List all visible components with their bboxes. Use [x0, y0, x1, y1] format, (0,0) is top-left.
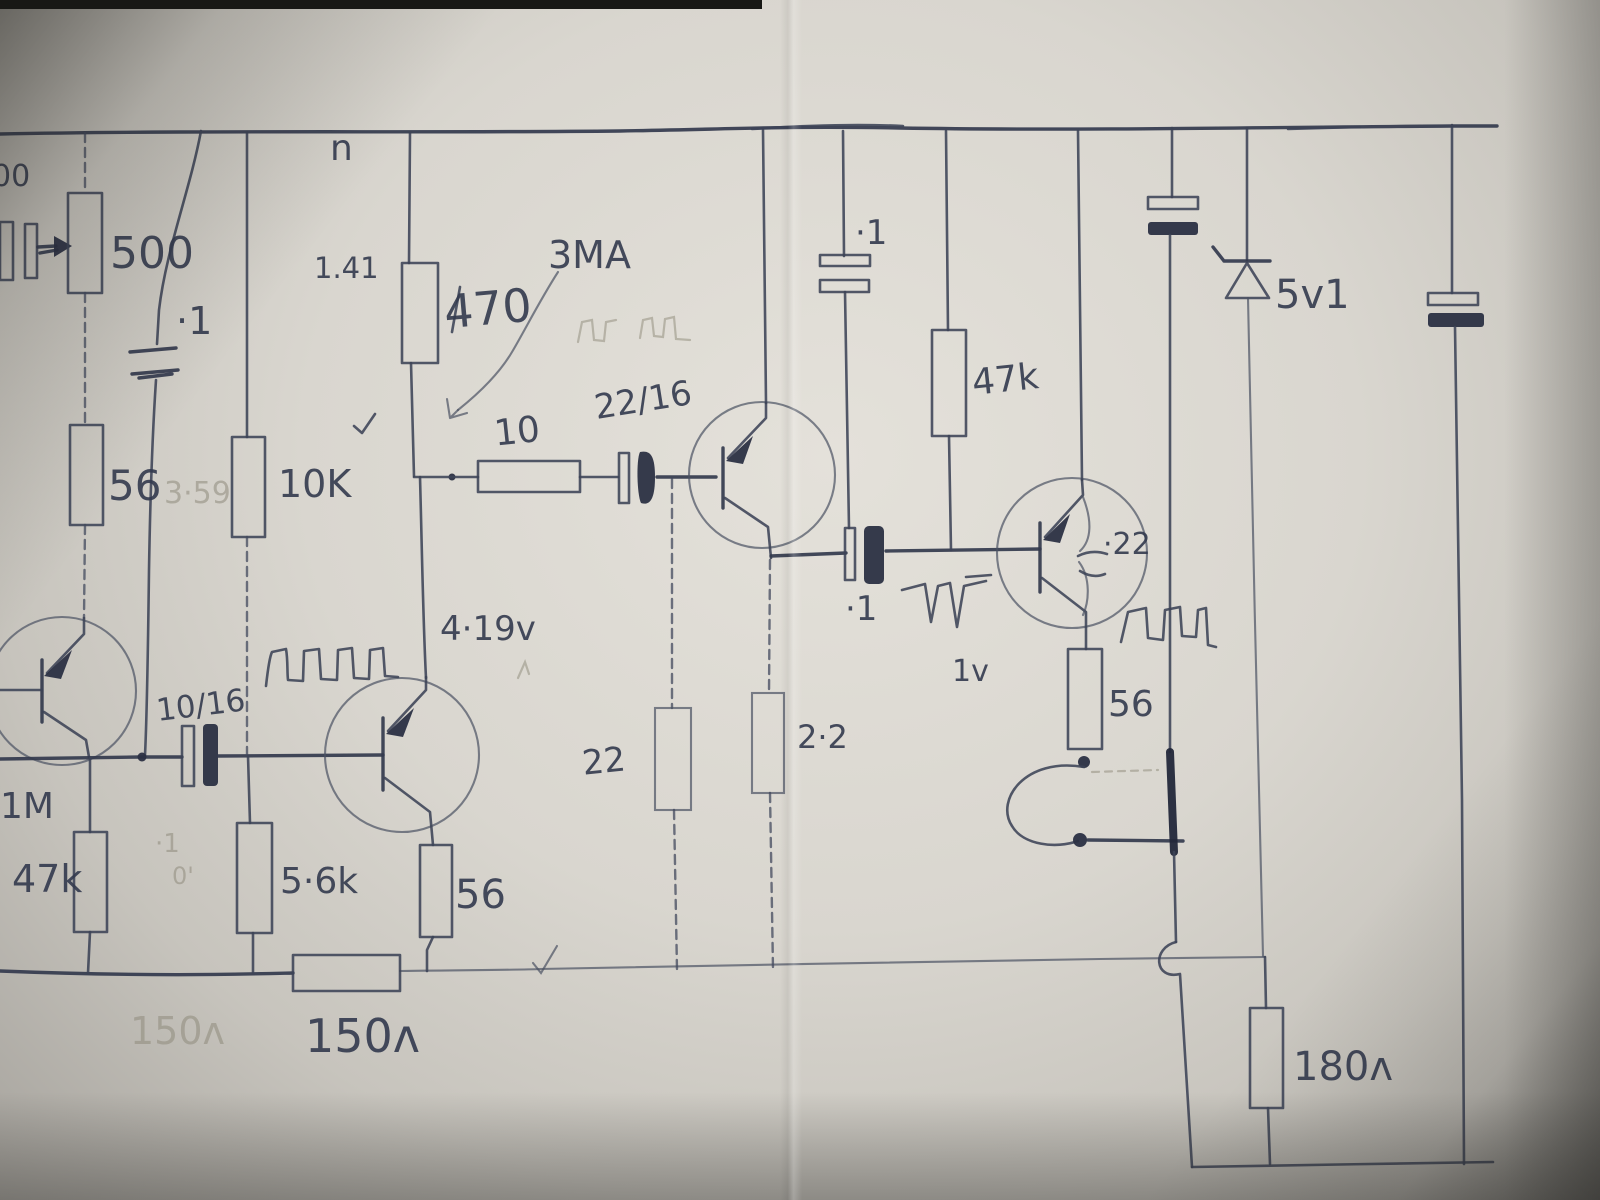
label-cap-01-couple: ·1 [845, 589, 877, 629]
label-pencil-01: ·1 [155, 829, 180, 859]
resistor-56-left [70, 425, 103, 618]
label-r56-right: 56 [1108, 684, 1154, 725]
label-r180: 180ʌ [1293, 1044, 1393, 1090]
label-00-edge: 00 [0, 159, 30, 194]
resistor-5k6 [237, 756, 272, 972]
label-zener-5v1: 5v1 [1275, 272, 1350, 318]
label-n-mark: n [330, 128, 353, 169]
capacitor-01-near-pot [130, 131, 201, 755]
label-r10: 10 [492, 409, 542, 455]
resistor-10 [414, 461, 618, 492]
label-cap-1016: 10/16 [154, 682, 247, 729]
resistor-180 [1250, 957, 1283, 1164]
photo-edge-strip [0, 0, 762, 9]
label-1v: 1v [952, 654, 989, 689]
electrolytic-cap-far-right [1428, 125, 1484, 1164]
squarewave-sketch-right [1121, 607, 1216, 647]
transistor-q1 [0, 617, 136, 765]
label-4-19v: 4·19v [440, 609, 536, 649]
zener-diode-5v1 [1213, 128, 1270, 956]
label-r47k-right: 47k [970, 356, 1041, 404]
label-pencil-0q: 0' [172, 862, 194, 890]
electrolytic-cap-top-right [1148, 128, 1198, 942]
label-r47k-left: 47k [12, 857, 82, 901]
label-r10k: 10K [278, 462, 352, 506]
label-cap-022: ·22 [1103, 527, 1151, 562]
paper-fold-crease [780, 0, 802, 1200]
transistor-q3 [689, 130, 835, 558]
label-1-41v: 1.41 [314, 251, 379, 285]
capacitor-2216 [619, 452, 716, 504]
label-r5k6: 5·6k [280, 861, 358, 902]
label-cap-01-top: ·1 [855, 213, 887, 253]
top-supply-rail [0, 125, 1497, 134]
resistor-10k [232, 133, 265, 755]
label-pencil-359: 3·59 [164, 476, 231, 511]
potentiometer-500 [68, 133, 102, 425]
capacitor-01-top [820, 131, 870, 528]
label-pot-500: 500 [110, 228, 194, 279]
handwritten-labels: n 00 500 ·1 1.41 470 3MA 22/16 10 56 3·5… [0, 128, 1393, 1090]
resistor-56-right [1068, 649, 1102, 749]
label-r1m: 1M [0, 786, 54, 827]
pencil-tick-mid [518, 662, 529, 678]
spike-waveform-sketch [902, 575, 991, 627]
squarewave-sketch-left [266, 648, 398, 686]
resistor-56-q2 [420, 845, 452, 971]
loop-link [1007, 756, 1183, 847]
label-r2-2: 2·2 [797, 718, 848, 756]
label-r150: 150ʌ [305, 1009, 420, 1063]
label-r56-q2: 56 [455, 872, 506, 918]
resistor-47k-right [932, 131, 966, 550]
wire-hop-over-ground [1159, 942, 1192, 1167]
checkmark-10k [354, 414, 375, 433]
squarewave-pencil-faint [578, 317, 690, 342]
label-3ma: 3MA [548, 233, 631, 277]
schematic-photo: n 00 500 ·1 1.41 470 3MA 22/16 10 56 3·5… [0, 0, 1600, 1200]
label-r22: 22 [580, 739, 627, 783]
resistor-22-branch [655, 479, 691, 970]
input-capacitor [0, 222, 37, 280]
transistor-q2 [325, 677, 479, 845]
label-r56-left: 56 [108, 461, 161, 510]
label-cap-01-input: ·1 [176, 299, 212, 343]
label-r470: 470 [442, 278, 534, 339]
resistor-150 [293, 955, 400, 991]
label-pencil-150: 150ʌ [130, 1009, 225, 1053]
label-cap-2216: 22/16 [592, 373, 695, 428]
